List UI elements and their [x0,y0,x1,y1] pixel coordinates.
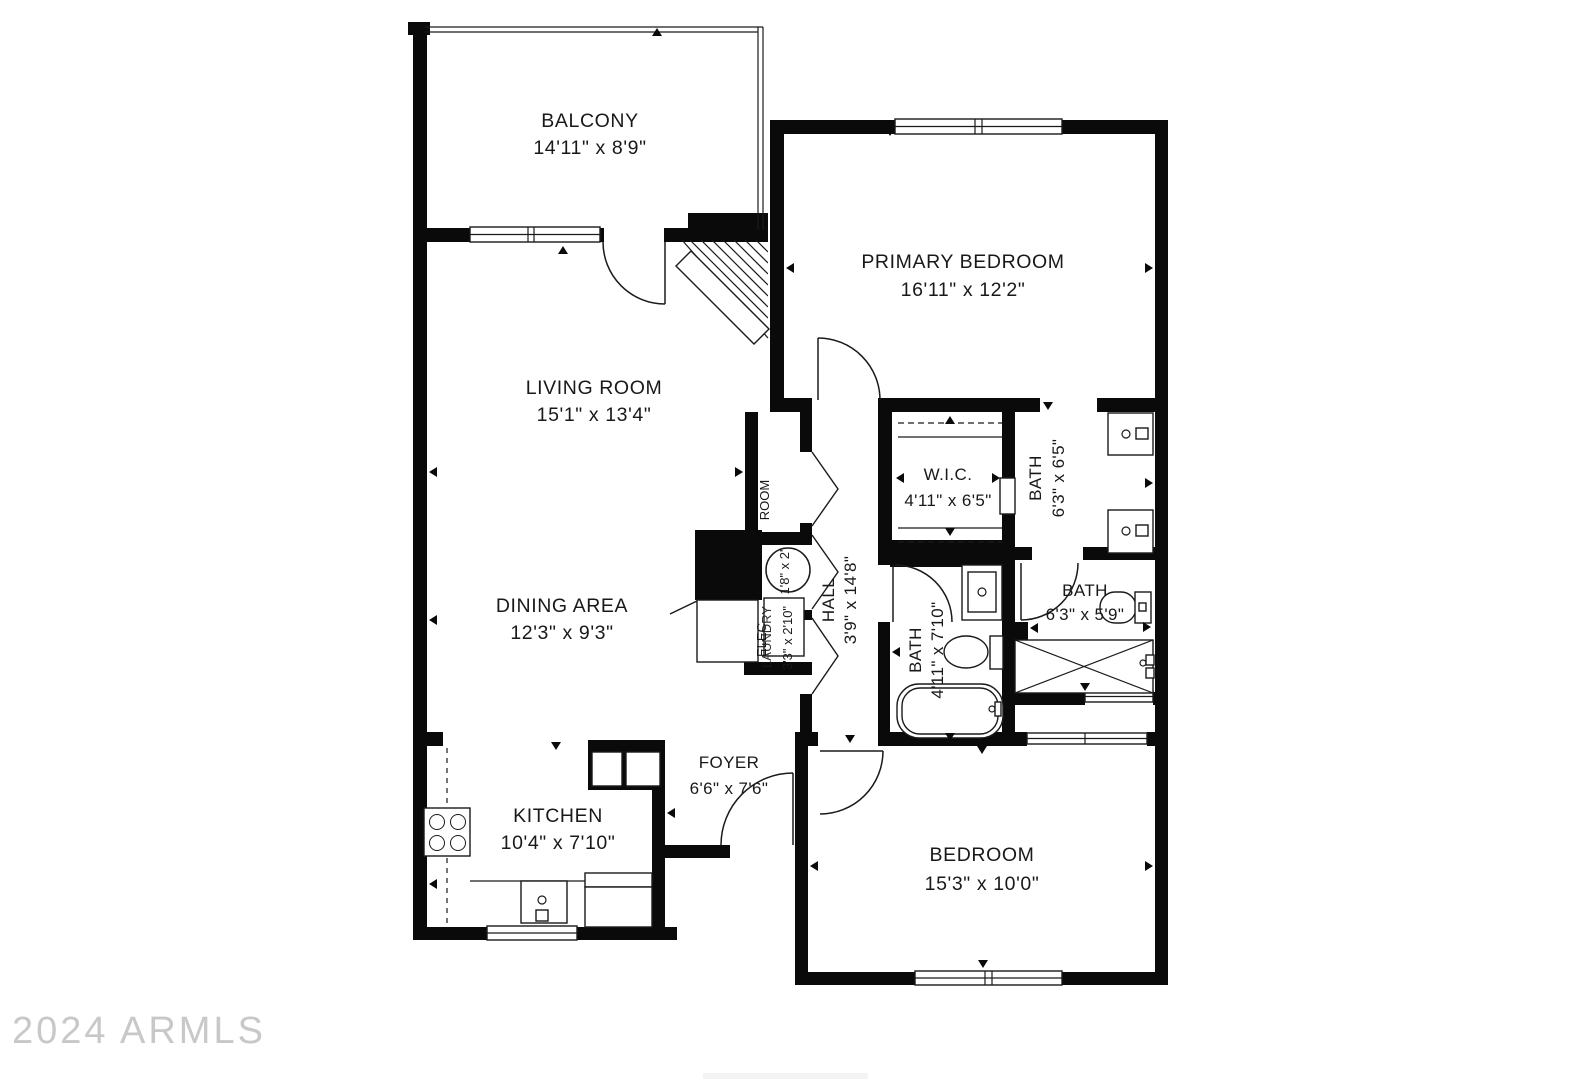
laundry-label: LAUNDRY [759,606,774,668]
sink-icon [1108,413,1153,455]
foyer-label: FOYER [699,753,760,772]
window-living-balcony [470,227,600,242]
window-bedroom [915,971,1062,985]
shower-bath-label: BATH [1062,581,1108,600]
hall-bath-dims: 4'11" x 7'10" [928,601,947,698]
windows [470,119,1153,985]
balcony-label: BALCONY [541,110,638,132]
storage-room-label: ROOM [757,480,772,520]
wic-label: W.I.C. [924,465,973,484]
laundry-dims: 3'3" x 2'10" [780,606,795,670]
kitchen-dims: 10'4" x 7'10" [501,832,616,854]
stairs-rail [676,251,769,344]
living-room-dims: 15'1" x 13'4" [537,404,652,426]
dining-area-label: DINING AREA [496,595,628,617]
balcony-dims: 14'11" x 8'9" [533,137,646,159]
armls-watermark: 2024 ARMLS [12,1010,266,1052]
bathtub-icon [897,684,1003,738]
sink-icon [962,565,1002,620]
door-primary-bedroom [818,338,880,400]
wic-dims: 4'11" x 6'5" [904,491,991,510]
kitchen-sink-icon [521,881,567,923]
stove-icon [424,808,470,856]
window-primary-bedroom [895,119,1062,134]
stairs [676,240,769,344]
floor-plan-svg: BALCONY 14'11" x 8'9" PRIMARY BEDROOM 16… [0,0,1571,1080]
shower-bath-dims: 6'3" x 5'9" [1046,605,1125,624]
primary-bedroom-label: PRIMARY BEDROOM [861,251,1064,273]
door-closet-dining [670,601,697,614]
primary-bath-dims: 6'3" x 6'5" [1049,439,1068,518]
bedroom-label: BEDROOM [930,844,1035,866]
primary-bath-label: BATH [1026,455,1045,501]
bottom-artifact [703,1073,868,1079]
door-balcony [603,242,665,304]
door-bedroom [820,751,883,814]
storage-room-dims: 1'8" x 2' [777,550,792,595]
hall-bath-label: BATH [906,627,925,673]
hall-closet-doors [812,452,838,694]
kitchen-label: KITCHEN [513,805,603,827]
window-kitchen [487,926,577,940]
bedroom-dims: 15'3" x 10'0" [925,873,1040,895]
foyer-dims: 6'6" x 7'6" [690,779,769,798]
hall-label: HALL [819,578,838,622]
sink-icon [1108,510,1153,553]
dining-area-dims: 12'3" x 9'3" [510,622,613,644]
toilet-icon [944,636,1003,669]
window-bedroom-top [1027,733,1147,744]
floor-plan-page: BALCONY 14'11" x 8'9" PRIMARY BEDROOM 16… [0,0,1571,1080]
door-wic [1000,478,1015,514]
living-room-label: LIVING ROOM [526,377,663,399]
primary-bedroom-dims: 16'11" x 12'2" [901,279,1026,301]
hall-dims: 3'9" x 14'8" [841,556,860,645]
